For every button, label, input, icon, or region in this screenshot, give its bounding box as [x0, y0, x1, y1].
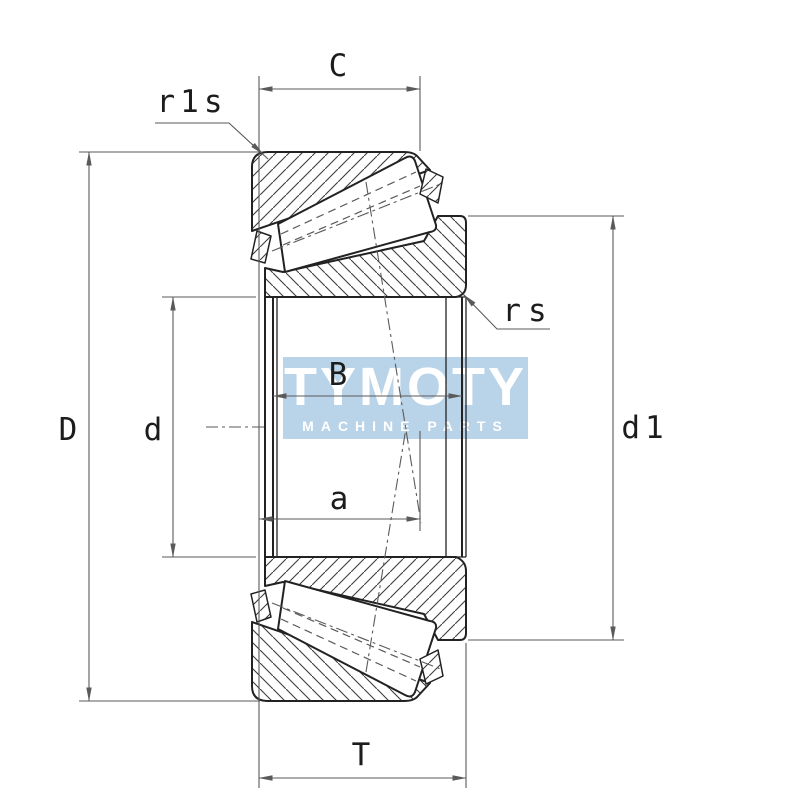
label-rs: rs [502, 293, 553, 329]
cage-top-small-end [251, 231, 271, 263]
leader-line-r1s [155, 123, 268, 159]
label-d: d [144, 412, 163, 448]
cage-bottom-small-end [251, 590, 271, 622]
label-C: C [329, 48, 348, 84]
bearing-drawing-canvas: TYMOTY MACHINE PARTS [0, 0, 800, 800]
label-D: D [59, 412, 78, 448]
bearing-cross-section-svg: C r1s rs D d B a d1 T [0, 0, 800, 800]
label-d1: d1 [621, 410, 668, 446]
label-T: T [352, 737, 371, 773]
label-B: B [329, 357, 348, 393]
label-a: a [330, 481, 349, 517]
label-r1s: r1s [157, 84, 228, 120]
